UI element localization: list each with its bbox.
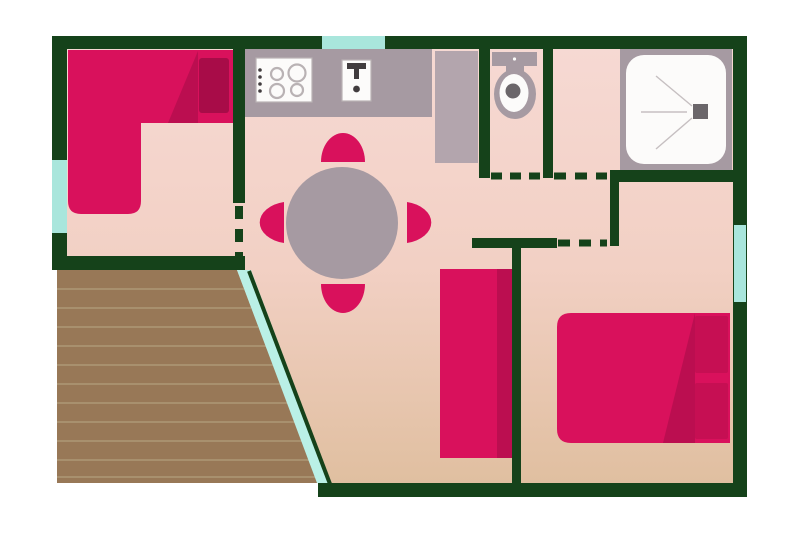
faucet-stem	[354, 63, 359, 79]
wardrobe-shade	[497, 269, 512, 458]
wall-bedroom-left-bottom	[52, 256, 245, 270]
stove-body	[256, 58, 312, 102]
floor-plan	[0, 0, 800, 533]
knob-dot	[258, 82, 262, 86]
wall-toilet-left	[479, 49, 490, 178]
wall-shower-bottom	[610, 170, 733, 182]
wall-bedroom-left-right	[233, 49, 245, 203]
sink-icon	[342, 60, 371, 101]
bed-pillow	[695, 316, 728, 373]
toilet-tank-button	[513, 57, 516, 60]
stove-icon	[256, 58, 312, 102]
toilet-bowl-center	[506, 84, 521, 99]
floor-plan-canvas	[0, 0, 800, 533]
toilet-icon	[492, 52, 537, 119]
bed-pillow	[695, 383, 728, 439]
sofa-bed-pillow	[199, 58, 229, 113]
dining-table	[286, 167, 398, 279]
knob-dot	[258, 75, 262, 79]
knob-dot	[258, 68, 262, 72]
wall-top	[52, 36, 747, 49]
double-bed	[557, 313, 730, 443]
wall-left	[52, 36, 67, 270]
wardrobe	[440, 269, 512, 458]
kitchen-tall-unit	[435, 51, 478, 163]
wall-toilet-right	[543, 49, 553, 178]
wall-room-divider	[512, 248, 521, 486]
knob-dot	[258, 89, 262, 93]
shower-icon	[620, 48, 732, 170]
window-right	[734, 225, 746, 302]
wall-bottom	[318, 483, 747, 497]
wall-vestibule	[610, 182, 619, 246]
shower-tray	[626, 55, 726, 164]
sink-drain	[353, 86, 360, 93]
shower-drain	[693, 104, 708, 119]
wall-bedroom-right-top	[472, 238, 557, 248]
window-top	[322, 36, 385, 49]
window-left	[52, 160, 67, 233]
